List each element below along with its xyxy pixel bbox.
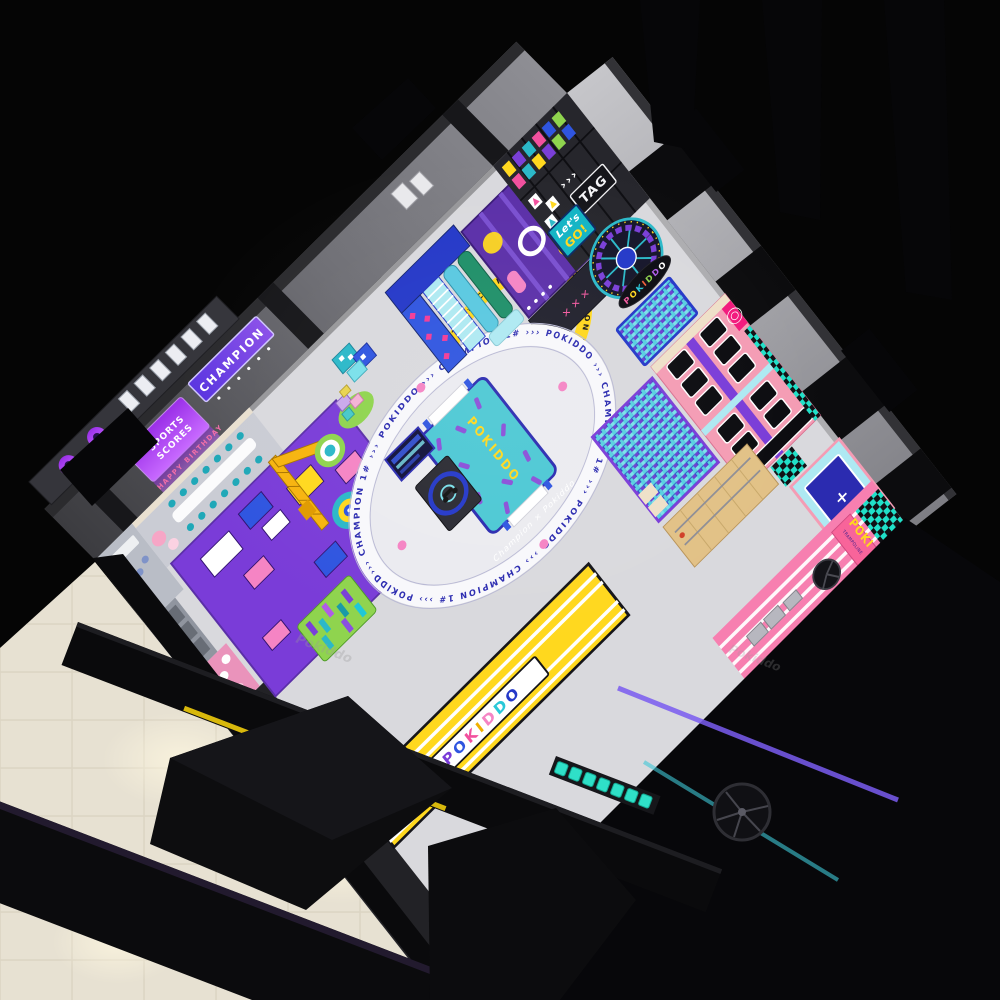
- playground-render: SPORTS SCORES CHAMPION HAPPY BIRTHDAY: [0, 0, 1000, 1000]
- scene-svg: SPORTS SCORES CHAMPION HAPPY BIRTHDAY: [0, 0, 1000, 1000]
- ambient-glow: [170, 150, 830, 650]
- spiral-staircase: [714, 784, 770, 840]
